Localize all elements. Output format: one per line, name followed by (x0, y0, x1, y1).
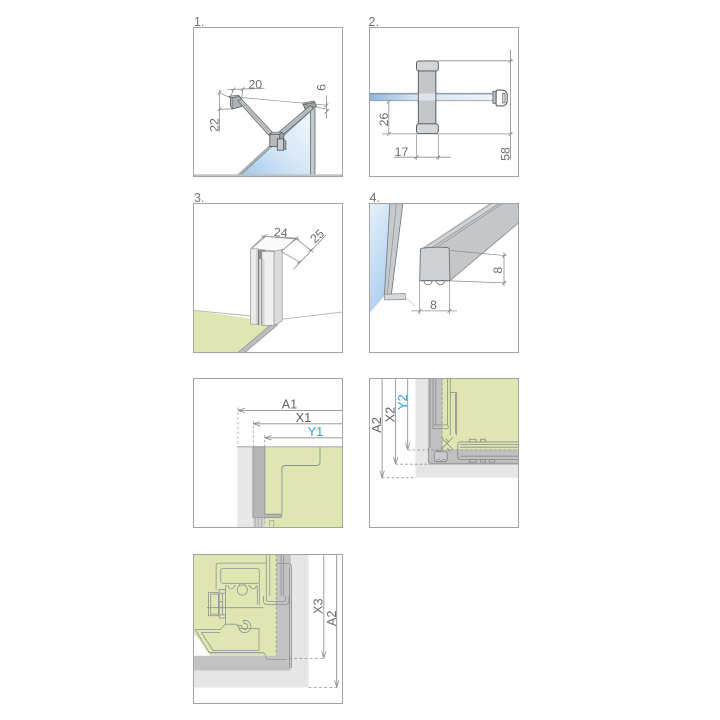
svg-text:Y1: Y1 (308, 424, 324, 439)
svg-text:24: 24 (273, 225, 288, 240)
svg-text:6: 6 (315, 84, 329, 91)
svg-text:X1: X1 (296, 410, 312, 425)
svg-text:A2: A2 (324, 610, 339, 626)
svg-text:X3: X3 (310, 598, 325, 614)
svg-text:25: 25 (308, 226, 328, 246)
svg-text:20: 20 (248, 78, 262, 92)
svg-text:26: 26 (377, 113, 391, 127)
svg-text:22: 22 (208, 118, 222, 132)
svg-text:8: 8 (430, 298, 437, 312)
svg-text:8: 8 (491, 267, 505, 274)
svg-text:58: 58 (499, 147, 513, 161)
svg-text:17: 17 (395, 145, 409, 159)
svg-text:Y2: Y2 (395, 394, 410, 410)
